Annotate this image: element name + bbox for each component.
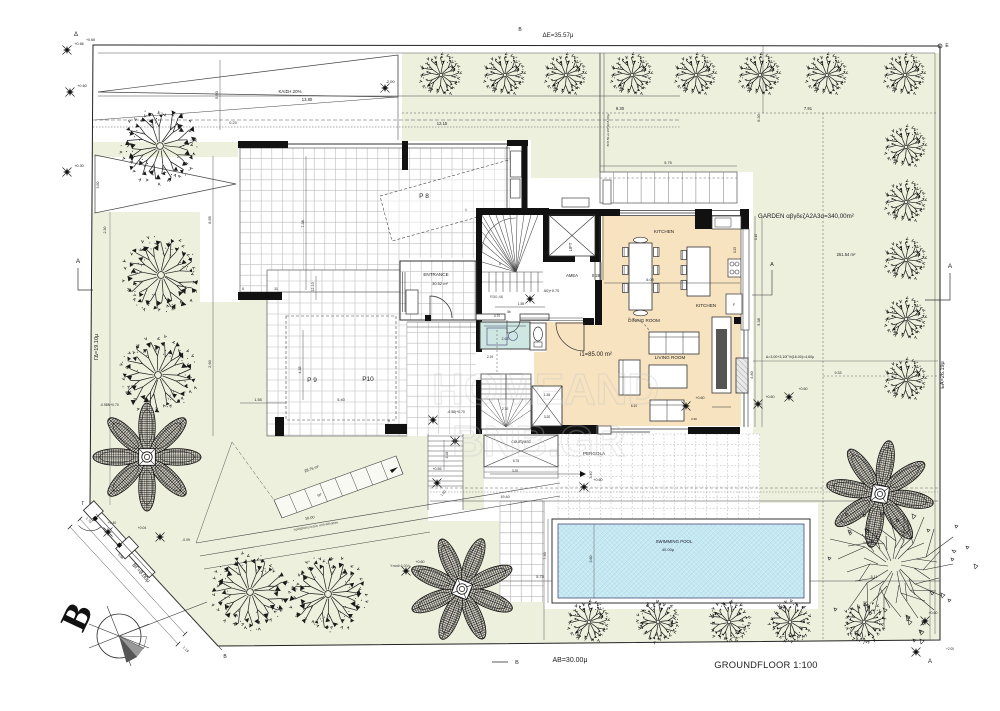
svg-text:2.30: 2.30 bbox=[103, 227, 107, 234]
svg-text:30.52 m²: 30.52 m² bbox=[432, 281, 448, 286]
svg-text:Δ=3,00+3,10Γ%(16.00)=4,60μ: Δ=3,00+3,10Γ%(16.00)=4,60μ bbox=[766, 355, 814, 359]
svg-text:2.16: 2.16 bbox=[445, 452, 449, 459]
svg-text:4.70: 4.70 bbox=[494, 314, 500, 318]
svg-text:λ: λ bbox=[465, 208, 467, 212]
svg-text:7.30: 7.30 bbox=[543, 552, 547, 559]
svg-text:3.60: 3.60 bbox=[96, 182, 100, 189]
svg-text:A: A bbox=[76, 258, 81, 265]
svg-text:ΚΛΙΣΗ 20%: ΚΛΙΣΗ 20% bbox=[279, 89, 302, 94]
svg-text:19.40: 19.40 bbox=[500, 495, 510, 499]
svg-text:8: 8 bbox=[499, 262, 501, 266]
svg-text:40.00μ: 40.00μ bbox=[662, 547, 675, 552]
svg-text:0.25: 0.25 bbox=[733, 247, 737, 253]
svg-text:ΑΜΕΑ: ΑΜΕΑ bbox=[566, 273, 578, 278]
svg-text:P10: P10 bbox=[362, 376, 374, 383]
svg-text:11: 11 bbox=[274, 287, 278, 291]
svg-text:9.30: 9.30 bbox=[616, 106, 625, 111]
svg-text:+2.00: +2.00 bbox=[946, 647, 954, 651]
svg-text:+0.60: +0.60 bbox=[77, 84, 87, 88]
svg-text:SWIMMING POOL: SWIMMING POOL bbox=[656, 539, 693, 544]
svg-text:0.28: 0.28 bbox=[592, 273, 601, 278]
svg-text:251.54 m²: 251.54 m² bbox=[837, 252, 856, 257]
svg-text:5.75: 5.75 bbox=[536, 575, 543, 579]
svg-text:HOMEAND: HOMEAND bbox=[432, 365, 659, 414]
svg-text:Υπαιθ 6.00Λ: Υπαιθ 6.00Λ bbox=[390, 564, 411, 568]
svg-text:+0.30: +0.30 bbox=[74, 164, 84, 168]
svg-text:+0.60: +0.60 bbox=[593, 478, 602, 482]
svg-text:LIVING ROOM: LIVING ROOM bbox=[655, 355, 686, 360]
svg-text:LIFT: LIFT bbox=[568, 242, 573, 251]
svg-text:9.33: 9.33 bbox=[835, 371, 842, 375]
svg-text:4.38: 4.38 bbox=[298, 367, 302, 374]
svg-text:Β=8.50+3.10Γ%(15.00)μ: Β=8.50+3.10Γ%(15.00)μ bbox=[606, 113, 610, 146]
svg-text:3.60: 3.60 bbox=[589, 556, 593, 563]
svg-text:0: 0 bbox=[242, 287, 244, 291]
svg-text:+0.40: +0.40 bbox=[108, 521, 117, 525]
svg-text:-0.58N+0.70: -0.58N+0.70 bbox=[100, 403, 119, 407]
svg-text:+0.60: +0.60 bbox=[798, 387, 807, 391]
svg-text:0.23: 0.23 bbox=[229, 121, 236, 125]
svg-text:2.19: 2.19 bbox=[487, 355, 493, 359]
svg-text:GARDEN αβγδεζΑ2Α3α=340,00m²: GARDEN αβγδεζΑ2Α3α=340,00m² bbox=[758, 213, 854, 220]
svg-text:+0.60: +0.60 bbox=[765, 395, 774, 399]
svg-text:3.20: 3.20 bbox=[512, 469, 518, 473]
svg-text:13.80: 13.80 bbox=[302, 97, 313, 102]
svg-text:6.30: 6.30 bbox=[757, 114, 761, 121]
svg-text:ΕΑ=26.19μ: ΕΑ=26.19μ bbox=[940, 361, 946, 388]
svg-text:+0.60: +0.60 bbox=[695, 396, 704, 400]
svg-text:-0.09: -0.09 bbox=[182, 538, 190, 542]
svg-text:0: 0 bbox=[388, 419, 390, 423]
svg-text:Δ: Δ bbox=[74, 32, 78, 38]
svg-text:+0.04: +0.04 bbox=[138, 526, 147, 530]
svg-text:4.80: 4.80 bbox=[750, 371, 754, 378]
svg-text:A: A bbox=[948, 263, 953, 270]
svg-text:A: A bbox=[928, 659, 932, 665]
svg-text:6.08: 6.08 bbox=[646, 278, 653, 282]
svg-text:7.38: 7.38 bbox=[301, 220, 305, 227]
svg-text:R30.48: R30.48 bbox=[490, 294, 504, 299]
svg-text:ENTRANCE: ENTRANCE bbox=[423, 272, 448, 277]
svg-text:12.10: 12.10 bbox=[311, 282, 315, 292]
svg-text:A: A bbox=[770, 262, 774, 268]
svg-text:0.90: 0.90 bbox=[691, 417, 697, 421]
svg-text:2.63: 2.63 bbox=[502, 337, 509, 341]
svg-text:5b: 5b bbox=[507, 310, 511, 314]
svg-text:3.40: 3.40 bbox=[589, 472, 593, 479]
svg-text:0.10: 0.10 bbox=[754, 234, 758, 240]
svg-text:+0.60: +0.60 bbox=[415, 560, 424, 564]
svg-text:ΓΔ=19.10μ: ΓΔ=19.10μ bbox=[94, 334, 100, 360]
svg-text:BNB.GR: BNB.GR bbox=[452, 417, 626, 466]
svg-text:5.40: 5.40 bbox=[337, 398, 344, 402]
svg-text:AB=30.00μ: AB=30.00μ bbox=[553, 657, 588, 664]
svg-text:9.38: 9.38 bbox=[757, 318, 761, 325]
svg-text:+0.66: +0.66 bbox=[86, 38, 95, 42]
svg-text:P 9: P 9 bbox=[307, 377, 317, 384]
svg-text:KITCHEN: KITCHEN bbox=[654, 229, 674, 234]
svg-text:B: B bbox=[515, 660, 519, 666]
svg-text:-2.00: -2.00 bbox=[385, 79, 395, 84]
svg-text:i1=85.00 m²: i1=85.00 m² bbox=[580, 352, 612, 358]
svg-text:5.75: 5.75 bbox=[664, 161, 671, 165]
svg-text:P 8: P 8 bbox=[419, 193, 429, 200]
svg-text:2.60: 2.60 bbox=[208, 360, 212, 367]
svg-text:ΔΕ=35.57μ: ΔΕ=35.57μ bbox=[543, 32, 574, 39]
svg-text:1.55: 1.55 bbox=[518, 302, 525, 306]
svg-text:+0.55: +0.55 bbox=[432, 467, 441, 471]
svg-text:Γ: Γ bbox=[82, 501, 85, 507]
svg-text:5.90: 5.90 bbox=[214, 90, 219, 99]
svg-text:1.55: 1.55 bbox=[254, 398, 261, 402]
svg-text:6.65: 6.65 bbox=[208, 216, 212, 223]
svg-text:GROUNDFLOOR 1:100: GROUNDFLOOR 1:100 bbox=[714, 659, 817, 670]
svg-text:+0.66: +0.66 bbox=[74, 42, 84, 46]
svg-text:7.91: 7.91 bbox=[804, 106, 813, 111]
svg-text:12.15: 12.15 bbox=[437, 121, 448, 126]
svg-text:KITCHEN: KITCHEN bbox=[696, 303, 716, 308]
